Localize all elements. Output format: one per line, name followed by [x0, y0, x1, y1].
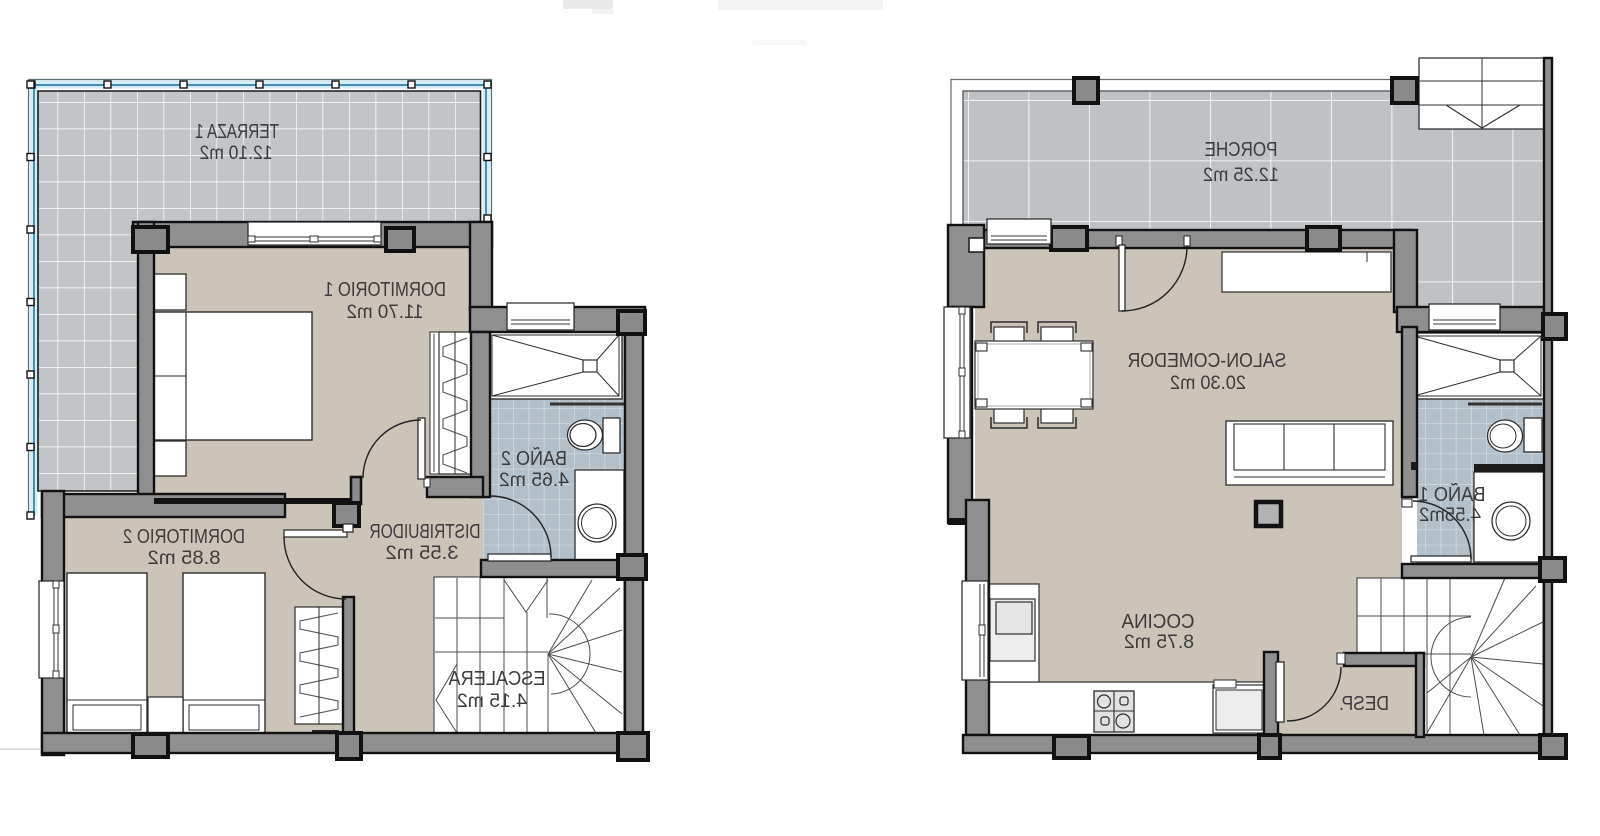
svg-text:12.10 m2: 12.10 m2: [200, 143, 273, 164]
svg-text:SALON-COMEDOR: SALON-COMEDOR: [1128, 350, 1287, 372]
svg-text:DORMITORIO 2: DORMITORIO 2: [123, 526, 245, 548]
svg-text:DESP.: DESP.: [1339, 693, 1389, 715]
svg-text:COCINA: COCINA: [1121, 611, 1195, 633]
svg-text:4.55m2: 4.55m2: [1419, 505, 1481, 526]
svg-text:20.30 m2: 20.30 m2: [1170, 373, 1246, 394]
svg-text:4.15 m2: 4.15 m2: [457, 691, 527, 712]
svg-text:3.55 m2: 3.55 m2: [386, 543, 459, 564]
svg-text:8.85 m2: 8.85 m2: [148, 548, 221, 569]
svg-text:BAÑO 1: BAÑO 1: [1419, 482, 1486, 506]
svg-text:DORMITORIO 1: DORMITORIO 1: [324, 279, 446, 301]
svg-text:ESCALERA: ESCALERA: [448, 668, 546, 690]
svg-text:11.70 m2: 11.70 m2: [347, 302, 424, 323]
svg-text:4.65 m2: 4.65 m2: [499, 470, 569, 491]
svg-text:BAÑO 2: BAÑO 2: [501, 446, 567, 470]
svg-text:PORCHE: PORCHE: [1205, 139, 1278, 161]
svg-text:TERRAZA 1: TERRAZA 1: [195, 121, 279, 143]
svg-text:DISTRIBUIDOR: DISTRIBUIDOR: [370, 521, 481, 543]
svg-text:12.25 m2: 12.25 m2: [1203, 165, 1279, 186]
svg-text:8.75 m2: 8.75 m2: [1124, 632, 1194, 653]
